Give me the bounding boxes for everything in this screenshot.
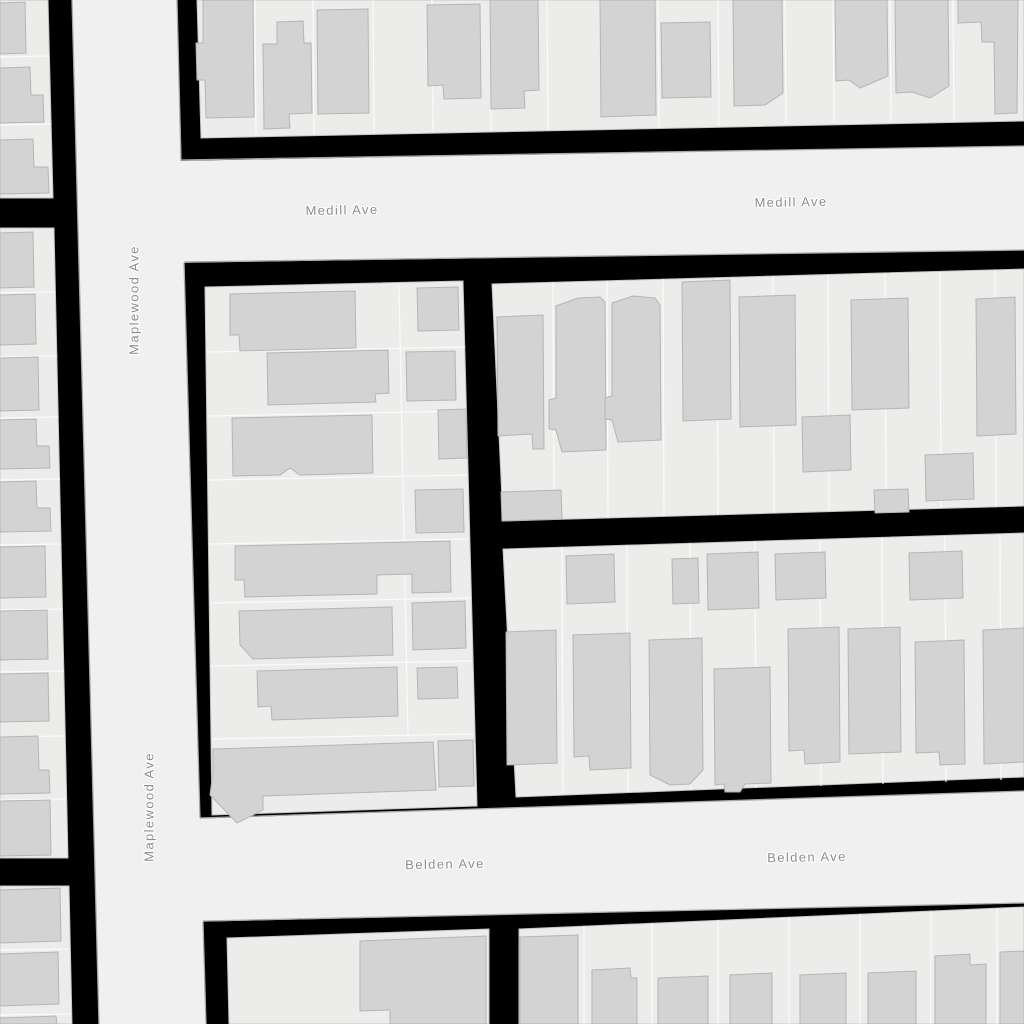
building — [661, 22, 711, 98]
building — [257, 667, 398, 720]
building — [267, 350, 389, 405]
building — [417, 667, 458, 699]
medill-ave-road — [170, 146, 1024, 263]
maplewood-ave-road — [72, 0, 206, 1024]
building — [406, 351, 456, 401]
building — [549, 297, 606, 452]
building — [600, 0, 656, 117]
building — [573, 633, 631, 770]
building — [788, 627, 840, 764]
building — [497, 315, 544, 449]
medill-ave-label-1: Medill Ave — [305, 202, 378, 218]
building — [983, 628, 1024, 764]
building — [239, 607, 393, 659]
building — [925, 453, 974, 501]
building — [0, 546, 46, 598]
building — [412, 601, 466, 650]
building — [976, 297, 1016, 436]
building — [672, 558, 699, 604]
building — [909, 551, 963, 600]
building — [649, 638, 703, 785]
building — [417, 287, 459, 331]
building — [682, 280, 731, 421]
building — [0, 673, 49, 722]
building — [592, 968, 637, 1024]
building — [520, 935, 578, 1024]
map-graphics — [0, 0, 1024, 1024]
map-canvas[interactable]: Medill Ave Medill Ave Maplewood Ave Mapl… — [0, 0, 1024, 1024]
building — [915, 640, 965, 765]
building — [0, 357, 39, 411]
building — [935, 954, 986, 1024]
building — [730, 973, 772, 1024]
building — [0, 952, 59, 1006]
building — [835, 0, 888, 88]
building — [874, 489, 909, 513]
building — [438, 740, 474, 787]
building — [230, 291, 356, 351]
belden-ave-label-2: Belden Ave — [767, 849, 847, 865]
building — [0, 232, 34, 288]
building — [566, 554, 615, 604]
building — [235, 541, 451, 597]
maplewood-ave-label-2: Maplewood Ave — [142, 752, 157, 862]
building — [714, 667, 771, 792]
building — [851, 298, 909, 410]
building — [895, 0, 949, 98]
building — [317, 9, 369, 114]
building — [438, 409, 467, 459]
building — [733, 0, 783, 106]
building — [775, 552, 826, 600]
building — [427, 4, 481, 99]
medill-ave-label-2: Medill Ave — [754, 194, 827, 210]
building — [0, 2, 26, 54]
building — [0, 1016, 57, 1024]
building — [0, 888, 61, 943]
building — [848, 627, 901, 754]
building — [506, 630, 557, 765]
building — [0, 294, 36, 345]
building — [0, 610, 48, 660]
building — [802, 415, 851, 472]
building — [501, 490, 562, 521]
building — [739, 295, 796, 427]
building — [800, 973, 846, 1024]
building — [605, 296, 661, 442]
building — [0, 800, 51, 856]
building — [707, 552, 759, 610]
building — [868, 971, 916, 1024]
building — [232, 415, 373, 476]
maplewood-ave-label-1: Maplewood Ave — [127, 245, 142, 355]
building — [360, 936, 486, 1024]
building — [1000, 951, 1024, 1024]
building — [658, 976, 708, 1024]
building — [415, 489, 464, 533]
belden-ave-label-1: Belden Ave — [405, 856, 485, 872]
